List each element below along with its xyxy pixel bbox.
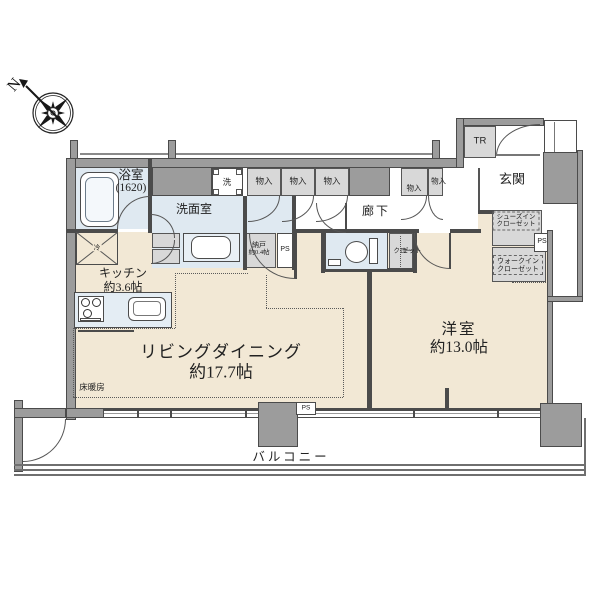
window-tick [413, 409, 415, 417]
compass-north-label: N [6, 75, 25, 95]
washer-pan-corner [213, 169, 219, 175]
counter-edge-line [78, 330, 134, 332]
wall-bottom-chunk [66, 408, 104, 418]
wall-east-cap [547, 296, 583, 302]
monoiri-label-3: 物入 [323, 177, 340, 187]
floor-heating-label: 床暖房 [79, 383, 105, 393]
door-swing-monoiri [282, 196, 314, 222]
monoiri-label-1: 物入 [255, 177, 272, 187]
window-tick [137, 409, 139, 417]
floorheat-dotted-right [343, 308, 344, 397]
entrance-step-line [478, 168, 480, 214]
washer-pan-corner [213, 189, 219, 195]
washer-pan-corner [236, 189, 242, 195]
balcony-railing [14, 464, 586, 466]
kitchen-dotted-right [175, 273, 176, 328]
balcony-railing-end [584, 418, 586, 476]
monoiri-label-5: 物入 [431, 178, 439, 187]
door-swing-balcony [23, 419, 66, 462]
stove-grill [80, 318, 101, 321]
stove-burner [92, 298, 101, 307]
shoes-in-closet-label: シューズイン クローゼット [493, 212, 540, 231]
wall-entrance-jamb [456, 118, 464, 168]
pillar-balcony-mid [258, 402, 298, 447]
wall-stub [432, 140, 440, 159]
window-tick [245, 409, 247, 417]
balcony-railing [14, 474, 586, 476]
floorheat-dotted-bottom [73, 397, 343, 398]
wall-storage-col-left [243, 196, 247, 270]
bedroom-label: 洋室 約13.0帖 [430, 321, 488, 357]
wall-stub [168, 140, 176, 159]
wall-hallway-south-b [450, 229, 481, 233]
wall-topline [80, 153, 432, 155]
window-band-south [66, 410, 582, 418]
washer-pan-corner [236, 169, 242, 175]
window-tick [497, 409, 499, 417]
small-storage-label: 納戸 約0.4帖 [248, 241, 269, 257]
wall-ld-bedroom [367, 270, 372, 413]
window-mullion [554, 122, 555, 156]
door-swing-entrance [496, 124, 540, 156]
wall-left [66, 158, 76, 420]
fridge-label: 冷 [93, 244, 102, 251]
pillar-balcony-right [540, 403, 582, 447]
wall-east-outer [577, 150, 583, 302]
trunk-room-label: TR [474, 137, 487, 148]
kitchen-dotted-bottom [73, 328, 175, 329]
kitchen-sink-inner [133, 301, 161, 316]
toilet-paper-holder [328, 259, 341, 266]
walk-in-closet-label: ウォークイン クローゼット [493, 255, 543, 275]
washer-label: 洗 [223, 178, 232, 188]
toilet-tank [369, 238, 378, 264]
living-dining-label: リビングダイニング 約17.7帖 [140, 342, 302, 381]
monoiri-label-2: 物入 [289, 177, 306, 187]
compass-rose: N [6, 56, 106, 156]
monoiri-label-4: 物入 [407, 185, 422, 194]
door-swing-monoiri [401, 196, 427, 220]
stove-burner [83, 309, 92, 318]
wall-top [66, 158, 458, 168]
bathroom-label: 浴室 (1620) [116, 168, 147, 196]
pipe-space-label-mid: PS [280, 246, 289, 254]
kitchen-label: キッチン 約3.6帖 [99, 267, 147, 295]
door-leaf-entrance [496, 154, 540, 156]
toilet-bowl [345, 241, 368, 263]
vanity-basin [191, 236, 231, 259]
entrance-label: 玄関 [499, 173, 525, 188]
window-band-midline [66, 413, 582, 414]
balcony-railing [14, 469, 586, 471]
pipe-space-label-right: PS [537, 238, 546, 246]
wall-bedroom-stub [445, 388, 449, 410]
kitchen-dotted-top [175, 273, 248, 274]
wall-balcony-ext [14, 408, 66, 418]
washroom-label: 洗面室 [176, 203, 212, 217]
door-swing-monoiri [428, 196, 443, 220]
floorheat-dotted-left [73, 328, 74, 397]
bedroom-closet-label: クロー ゼット [393, 247, 408, 254]
floorheat-dotted-top [266, 308, 343, 309]
pipe-space-label-bottom: PS [302, 404, 311, 411]
wall-bedroom-east [547, 230, 553, 413]
bathtub-inner [85, 177, 114, 222]
floorheat-dotted-jog [266, 275, 267, 308]
balcony-label: バルコニー [252, 450, 329, 464]
stove-burner [81, 298, 90, 307]
window-tick [170, 409, 172, 417]
hallway-label: 廊下 [362, 205, 390, 219]
wic-dotted-edge [512, 282, 546, 283]
floor-plan: 冷 [0, 0, 600, 600]
